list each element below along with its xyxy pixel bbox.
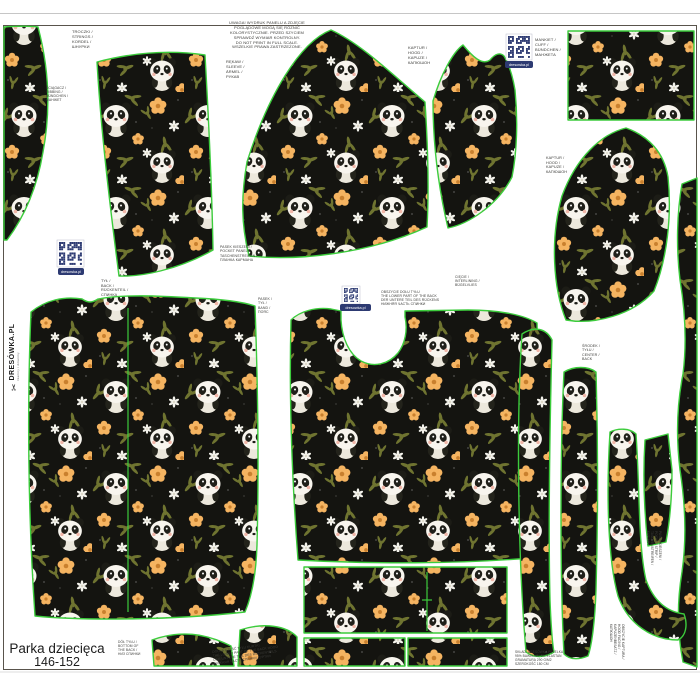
qr-code-center: dresowka.pl xyxy=(340,286,371,311)
product-size-range: 146-152 xyxy=(5,655,109,669)
piece-front xyxy=(290,308,538,562)
piece-trim-strip-b xyxy=(561,368,598,659)
qr-code-left: dresowka.pl xyxy=(57,240,84,275)
label-ribbing: ŚCIĄGACZ / RIBBING / BÜNDCHEN / МАНЖЕТ xyxy=(46,86,68,103)
label-disclaimer: UWAGA! WYDRUK PANELU A ZDJĘCIE POGLĄDOWE… xyxy=(211,21,323,50)
label-hood: KAPTUR / HOOD / KAPUZE / КАПЮШОН xyxy=(408,46,430,66)
label-cuff: MANKIET / CUFF / BÜNDCHEN / МАНЖЕТА xyxy=(535,38,561,58)
brand-logo: ✂ DRESÓWKA.PL tkaniny i dzianiny xyxy=(6,295,23,391)
qr-banner-label: dresowka.pl xyxy=(509,63,529,67)
piece-right-edge-strip xyxy=(678,178,697,667)
label-bottom-back: DÓŁ TYŁU / BOTTOM OF THE BACK / НИЗ СПИН… xyxy=(118,640,140,656)
label-fabric-info: SKŁAD: DRESÓWKA PĘTELKA 95% BAWEŁNA, 5% … xyxy=(515,651,585,667)
label-hood-facing-vertical: OBSZYCIE KAPTURA / HOOD FACING / KAPUZEN… xyxy=(608,624,624,659)
qr-code-top: dresowka.pl xyxy=(505,34,533,68)
piece-hood-side xyxy=(554,128,669,321)
label-back-note: OBSZYCIE DOŁU TYŁU THE LOWER PART OF THE… xyxy=(381,290,441,307)
scissors-icon: ✂ xyxy=(9,383,20,391)
label-pocket-vertical: PASEK KIESZENI / POCKET STRIP / TASCHENS… xyxy=(645,531,661,565)
pattern-panel-image: dresowka.pldresowka.pldresowka.pl TROCZK… xyxy=(0,0,700,700)
label-pocket-strip: PASEK KIESZENI / POCKET PANEL / TASCHENS… xyxy=(220,245,257,262)
piece-hem-band-right xyxy=(408,638,507,666)
label-hood-side: KAPTUR / HOOD / KAPUZE / КАПЮШОН xyxy=(546,156,567,175)
brand-logo-text: DRESÓWKA.PL xyxy=(9,324,16,381)
label-center-back: ŚRODEK / TYŁU / CENTER / BACK xyxy=(582,344,600,362)
piece-sleeve-left xyxy=(97,52,213,276)
product-title-block: Parka dziecięca 146-152 xyxy=(5,641,109,669)
piece-sleeve-main xyxy=(243,30,428,257)
piece-cuff-rectangle xyxy=(568,31,694,120)
label-band: PASEK / TYŁ / BAND / ПОЯС xyxy=(258,297,272,314)
piece-hood-top xyxy=(433,45,517,228)
piece-back xyxy=(29,296,258,619)
label-interlining: CIĘCIE / INTERLINING / BÜGELVLIES xyxy=(455,275,480,287)
qr-banner-label: dresowka.pl xyxy=(345,306,365,310)
label-sleeve: RĘKAW / SLEEVE / ÄRMEL / РУКАВ xyxy=(226,60,245,80)
piece-facing-quad xyxy=(644,434,672,546)
label-drawstring: TROCZKI / STRINGS / KORDEL / ШНУРКИ xyxy=(72,30,93,50)
product-name: Parka dziecięca xyxy=(5,641,109,656)
label-back: TYŁ / BACK / RÜCKENTEIL / СПИНКА xyxy=(101,279,128,298)
piece-mid-panel xyxy=(304,567,507,633)
piece-hem-band-left xyxy=(304,638,405,666)
brand-logo-tagline: tkaniny i dzianiny xyxy=(16,324,20,381)
piece-drawstring-sliver xyxy=(4,26,48,240)
qr-banner-label: dresowka.pl xyxy=(61,270,81,274)
piece-trim-strip-a xyxy=(519,329,554,656)
